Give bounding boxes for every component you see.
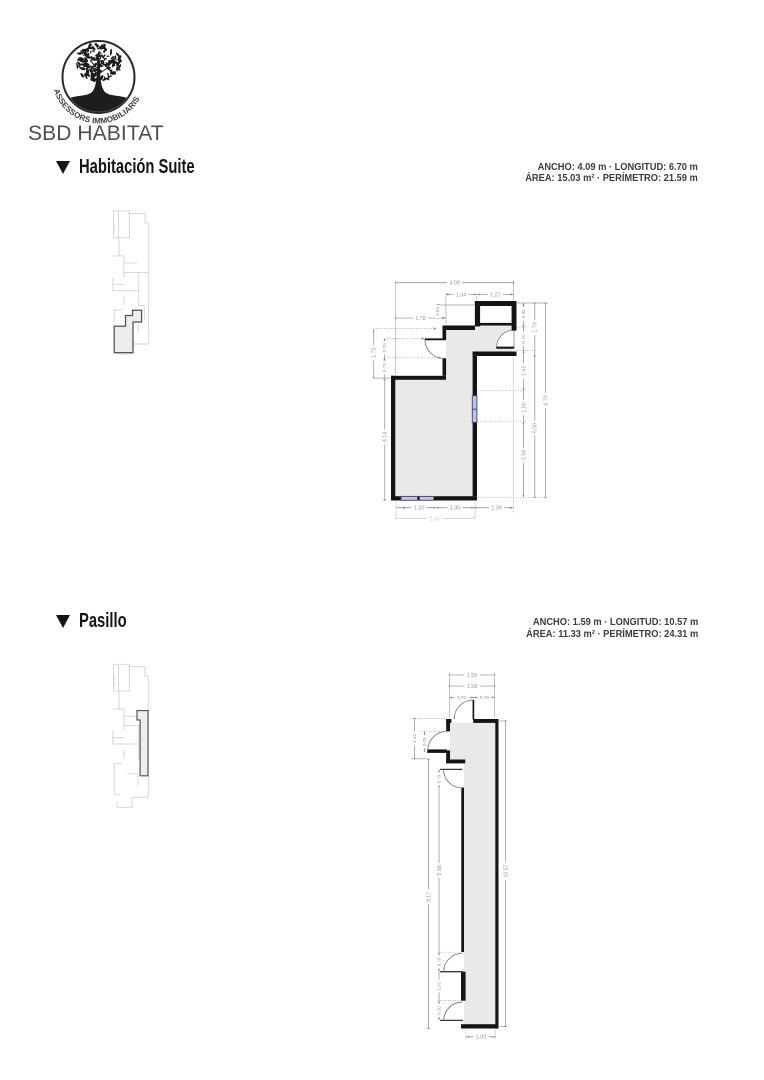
svg-text:4.14: 4.14	[383, 432, 389, 442]
svg-text:1.30: 1.30	[450, 506, 460, 512]
svg-text:10.57: 10.57	[503, 864, 509, 877]
svg-text:1.20: 1.20	[414, 506, 424, 512]
svg-text:0.84: 0.84	[521, 309, 526, 319]
svg-text:1.39: 1.39	[491, 506, 501, 512]
svg-text:1.42: 1.42	[521, 366, 527, 376]
svg-text:1.04: 1.04	[456, 292, 466, 298]
svg-text:0.79: 0.79	[437, 774, 442, 783]
svg-text:5.66: 5.66	[437, 865, 443, 875]
svg-text:0.70: 0.70	[422, 737, 427, 746]
svg-text:0.70: 0.70	[382, 343, 387, 353]
svg-text:6.70: 6.70	[543, 395, 549, 405]
svg-text:0.71: 0.71	[382, 363, 387, 373]
svg-text:1.00: 1.00	[521, 402, 527, 412]
svg-text:1.59: 1.59	[467, 673, 477, 679]
svg-text:5.00: 5.00	[533, 423, 539, 433]
svg-text:0.75: 0.75	[437, 957, 442, 966]
svg-text:0.70: 0.70	[521, 334, 526, 344]
svg-text:1.73: 1.73	[372, 348, 378, 358]
svg-text:2.58: 2.58	[521, 450, 527, 460]
svg-text:1.58: 1.58	[467, 684, 477, 690]
svg-text:1.27: 1.27	[490, 292, 500, 298]
svg-text:0.76: 0.76	[480, 695, 490, 700]
svg-text:2.50: 2.50	[429, 517, 439, 523]
svg-text:0.70: 0.70	[457, 695, 467, 700]
svg-text:1.00: 1.00	[476, 1035, 486, 1041]
svg-text:1.79: 1.79	[533, 322, 539, 332]
svg-text:0.03: 0.03	[435, 307, 440, 316]
svg-text:4.09: 4.09	[449, 281, 459, 287]
svg-text:9.17: 9.17	[426, 892, 432, 902]
svg-text:0.70: 0.70	[437, 1006, 442, 1015]
svg-text:1.01: 1.01	[437, 981, 442, 990]
svg-text:1.40: 1.40	[412, 734, 417, 744]
svg-text:1.78: 1.78	[415, 316, 425, 322]
